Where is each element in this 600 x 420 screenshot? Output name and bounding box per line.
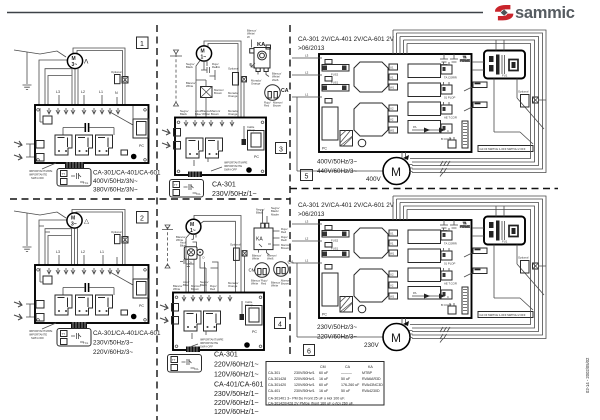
svg-text:———: ——— [341, 371, 352, 375]
svg-text:CA-301/CA-401/CA-601: CA-301/CA-401/CA-601 [93, 170, 161, 177]
svg-text:3: 3 [279, 147, 283, 154]
svg-text:CA-301401 3~ PM De Front 25 uF: CA-301401 3~ PM De Front 25 uF o Hol 100… [268, 397, 345, 401]
svg-text:Mader: Mader [271, 212, 279, 216]
svg-text:RVA6AR3D: RVA6AR3D [362, 377, 381, 381]
svg-text:Weiß: Weiß [272, 78, 279, 82]
svg-text:60 uF: 60 uF [319, 383, 329, 387]
svg-text:4: 4 [278, 322, 282, 329]
svg-text:CA-301/CA-401/CA-601: CA-301/CA-401/CA-601 [93, 330, 161, 337]
svg-text:Optional: Optional [111, 230, 122, 234]
svg-text:1~: 1~ [201, 55, 207, 61]
svg-text:Black: Black [180, 112, 187, 116]
svg-text:CM: CM [320, 365, 326, 369]
svg-text:02-14 - 2002/05/02: 02-14 - 2002/05/02 [585, 357, 590, 393]
svg-text:230V/50Hz/1: 230V/50Hz/1 [294, 371, 315, 375]
svg-text:3~: 3~ [71, 222, 77, 228]
svg-text:CA-301: CA-301 [214, 352, 238, 359]
svg-text:TT: TT [62, 172, 66, 176]
svg-text:L3: L3 [56, 90, 60, 94]
svg-text:L3: L3 [56, 250, 60, 254]
svg-text:L1: L1 [100, 250, 104, 254]
svg-text:PC: PC [139, 144, 144, 148]
svg-text:TT: TT [174, 183, 178, 187]
svg-text:Brown: Brown [191, 287, 199, 291]
svg-text:KA: KA [257, 42, 266, 48]
svg-text:CA-301: CA-301 [268, 371, 280, 375]
svg-text:RVA43NC3D: RVA43NC3D [362, 383, 383, 387]
svg-text:3~: 3~ [72, 62, 78, 68]
svg-text:5: 5 [305, 174, 309, 181]
svg-text:230V/50Hz/1: 230V/50Hz/1 [294, 389, 315, 393]
svg-text:Blue: Blue [183, 283, 189, 287]
svg-text:120V/60Hz/1: 120V/60Hz/1 [294, 383, 315, 387]
svg-text:Optional: Optional [111, 70, 122, 74]
svg-text:1: 1 [140, 41, 144, 48]
svg-text:CA-301420: CA-301420 [268, 383, 286, 387]
svg-text:16 uF: 16 uF [319, 389, 329, 393]
svg-text:Black: Black [200, 283, 207, 287]
svg-text:TT: TT [62, 332, 66, 336]
svg-text:440V/60Hz/3~: 440V/60Hz/3~ [317, 168, 357, 175]
svg-text:Red: Red [261, 282, 267, 286]
svg-text:230V/50Hz/3~: 230V/50Hz/3~ [317, 324, 357, 331]
svg-text:sammic: sammic [515, 4, 575, 22]
svg-text:220V/60Hz/3~: 220V/60Hz/3~ [317, 334, 357, 341]
svg-text:230V/50Hz/3~: 230V/50Hz/3~ [93, 340, 133, 347]
svg-text:TCL: TCL [83, 181, 89, 185]
svg-text:SWN-OFF: SWN-OFF [31, 176, 44, 180]
svg-text:Red/: Red/ [281, 238, 287, 242]
svg-text:White: White [251, 282, 259, 286]
svg-text:400V: 400V [366, 176, 382, 183]
svg-text:Brown: Brown [273, 104, 281, 108]
svg-text:120V/60Hz/1~: 120V/60Hz/1~ [214, 409, 259, 416]
svg-text:CA-301420/428 2V PMGe (front 1: CA-301420/428 2V PMGe (front 160 uF o (t… [268, 402, 354, 406]
svg-text:Orange: Orange [251, 82, 261, 86]
svg-text:CA-401: CA-401 [268, 389, 280, 393]
svg-text:50 uF: 50 uF [341, 377, 351, 381]
svg-text:220V/60Hz/1~: 220V/60Hz/1~ [214, 400, 259, 407]
svg-text:Optional: Optional [228, 67, 239, 71]
svg-text:RVA4230D: RVA4230D [362, 389, 380, 393]
svg-text:SWN-OFF: SWN-OFF [31, 336, 44, 340]
svg-text:230V/50Hz/1~: 230V/50Hz/1~ [214, 391, 259, 398]
svg-text:Optional: Optional [230, 243, 241, 247]
svg-text:L1: L1 [99, 90, 103, 94]
svg-text:230V: 230V [364, 342, 380, 349]
svg-text:W.: W. [247, 35, 250, 39]
svg-text:SWN-OFF: SWN-OFF [224, 168, 237, 172]
svg-text:Brown: Brown [281, 246, 289, 250]
svg-text:120V/60Hz/1~: 120V/60Hz/1~ [214, 372, 259, 379]
svg-text:380V/60Hz/3N~: 380V/60Hz/3N~ [93, 187, 138, 194]
svg-text:220V/60Hz/3~: 220V/60Hz/3~ [93, 349, 133, 356]
svg-text:Weiß: Weiß [267, 257, 274, 261]
svg-text:L2: L2 [81, 90, 85, 94]
svg-text:Black: Black [186, 65, 193, 69]
svg-text:L2: L2 [81, 250, 85, 254]
svg-text:TCL: TCL [83, 341, 89, 345]
svg-text:Orange: Orange [228, 284, 238, 288]
svg-text:Λ: Λ [84, 59, 89, 66]
svg-text:Orange: Orange [228, 112, 238, 116]
svg-text:CA-401/CA-601: CA-401/CA-601 [214, 382, 264, 389]
svg-text:60 uF: 60 uF [319, 371, 329, 375]
svg-text:CA: CA [216, 65, 220, 69]
svg-text:>06/2013: >06/2013 [298, 45, 325, 52]
svg-text:Red: Red [264, 104, 270, 108]
svg-text:CA-301428: CA-301428 [268, 377, 286, 381]
svg-text:220V/60Hz/1: 220V/60Hz/1 [294, 377, 315, 381]
svg-text:MTBP: MTBP [362, 371, 373, 375]
svg-text:White: White [252, 257, 260, 261]
svg-text:CM: CM [249, 268, 256, 273]
svg-text:Brown: Brown [214, 91, 222, 95]
svg-text:2: 2 [140, 216, 144, 223]
svg-text:220V/60Hz/1~: 220V/60Hz/1~ [214, 362, 259, 369]
svg-text:Orange: Orange [228, 94, 238, 98]
svg-text:16 uF: 16 uF [319, 377, 329, 381]
svg-text:White: White [271, 284, 279, 288]
svg-text:PC: PC [254, 155, 259, 159]
svg-text:D: D [203, 256, 205, 260]
svg-text:50 uF: 50 uF [341, 389, 351, 393]
svg-text:TCL: TCL [194, 367, 200, 371]
svg-text:CA: CA [288, 260, 294, 265]
svg-text:Brown: Brown [281, 282, 289, 286]
svg-text:PC: PC [139, 304, 144, 308]
svg-text:PC: PC [252, 330, 257, 334]
svg-text:6: 6 [307, 349, 311, 356]
svg-text:CA-301 2V/CA-401 2V/CA-601 2V: CA-301 2V/CA-401 2V/CA-601 2V [298, 202, 395, 209]
svg-text:SWN-OFF: SWN-OFF [200, 345, 213, 349]
svg-text:TT: TT [172, 358, 176, 362]
svg-text:Red: Red [281, 230, 287, 234]
svg-text:CA-301 2V/CA-401 2V/CA-601 2V: CA-301 2V/CA-401 2V/CA-601 2V [298, 36, 395, 43]
svg-text:KA: KA [256, 237, 263, 243]
svg-text:230V/50Hz/1~: 230V/50Hz/1~ [212, 191, 257, 198]
svg-text:White: White [173, 287, 181, 291]
svg-text:Black: Black [256, 211, 263, 215]
svg-text:>06/2013: >06/2013 [298, 211, 325, 218]
svg-text:Blue/ White/ Brown: Blue/ White/ Brown [195, 112, 219, 116]
svg-text:400V/50Hz/3~: 400V/50Hz/3~ [317, 159, 357, 166]
svg-text:1~: 1~ [190, 228, 196, 234]
svg-text:TCL: TCL [196, 192, 202, 196]
svg-text:KA: KA [368, 365, 373, 369]
svg-text:176-260 uF: 176-260 uF [341, 383, 360, 387]
svg-text:N: N [115, 91, 118, 95]
svg-text:CA: CA [281, 88, 289, 94]
svg-text:CA: CA [345, 365, 351, 369]
svg-text:White: White [186, 84, 194, 88]
svg-text:400V/50Hz/3N~: 400V/50Hz/3N~ [93, 178, 138, 185]
svg-text:CA-301: CA-301 [212, 182, 236, 189]
svg-text:Red: Red [210, 287, 216, 291]
